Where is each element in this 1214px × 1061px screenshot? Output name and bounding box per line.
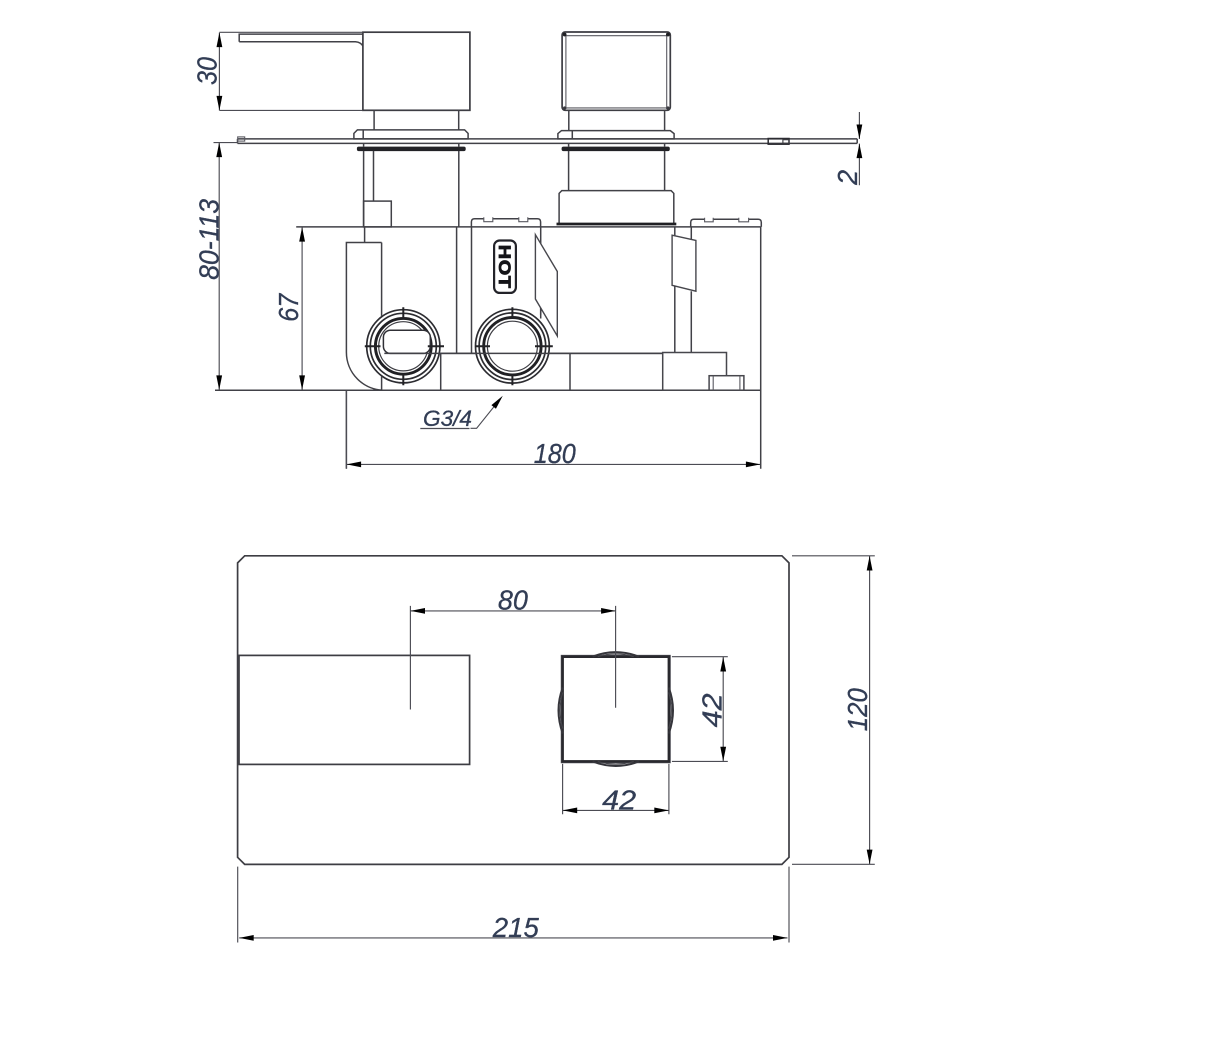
svg-text:G3/4: G3/4 bbox=[423, 406, 472, 431]
svg-text:67: 67 bbox=[273, 292, 304, 321]
svg-text:HOT: HOT bbox=[495, 245, 514, 289]
svg-text:42: 42 bbox=[602, 784, 636, 815]
svg-text:120: 120 bbox=[842, 688, 873, 731]
svg-text:80-113: 80-113 bbox=[194, 198, 225, 279]
svg-text:30: 30 bbox=[191, 57, 222, 85]
svg-text:2: 2 bbox=[832, 169, 863, 185]
svg-text:180: 180 bbox=[534, 438, 576, 469]
svg-text:42: 42 bbox=[697, 693, 728, 727]
svg-text:215: 215 bbox=[492, 912, 539, 943]
svg-text:80: 80 bbox=[498, 585, 528, 616]
